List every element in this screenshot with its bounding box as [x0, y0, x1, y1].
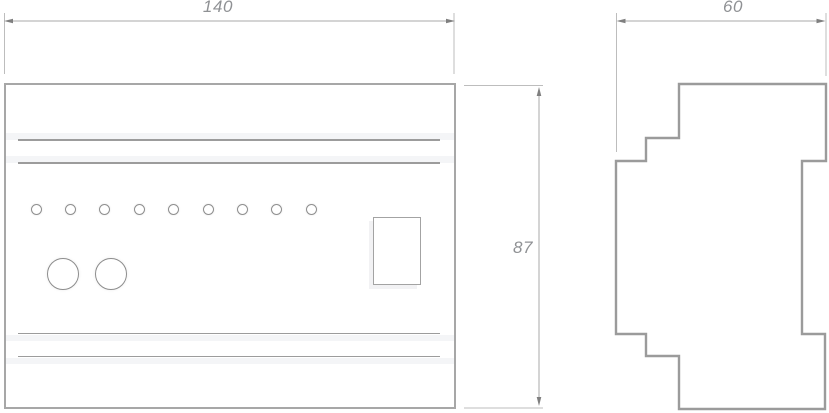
led-indicator	[203, 204, 214, 215]
push-button-circle	[95, 258, 127, 290]
arrowhead	[537, 397, 542, 406]
groove-highlight	[6, 358, 454, 365]
width-dimension	[4, 13, 455, 74]
led-indicator	[99, 204, 110, 215]
led-indicator	[134, 204, 145, 215]
width-dimension-label: 140	[193, 0, 243, 15]
led-indicator	[271, 204, 282, 215]
display-window	[373, 217, 421, 285]
push-button-circle	[47, 258, 79, 290]
led-indicator	[237, 204, 248, 215]
arrowhead	[537, 87, 542, 96]
depth-dimension-label: 60	[708, 0, 758, 15]
technical-drawing: 140 60 87	[0, 0, 829, 413]
groove-line	[18, 139, 440, 141]
side-profile-outline	[616, 84, 826, 409]
led-indicator	[31, 204, 42, 215]
height-dimension-label: 87	[500, 239, 546, 256]
led-indicator	[65, 204, 76, 215]
arrowhead	[4, 19, 13, 24]
arrowhead	[617, 19, 626, 24]
arrowhead	[817, 19, 826, 24]
groove-line	[18, 162, 440, 164]
led-indicator	[168, 204, 179, 215]
led-indicator	[306, 204, 317, 215]
groove-highlight	[6, 335, 454, 342]
